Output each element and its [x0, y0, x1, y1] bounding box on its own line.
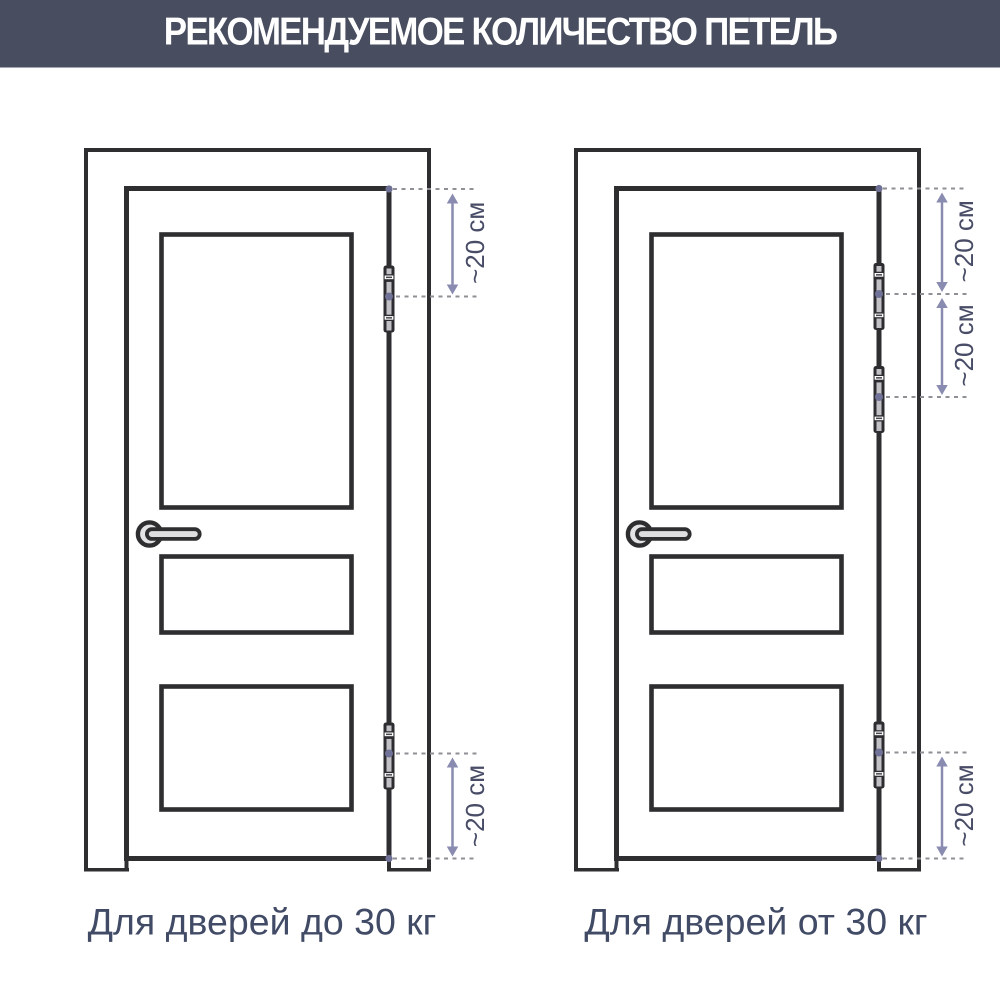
svg-text:Для дверей от 30 кг: Для дверей от 30 кг — [584, 901, 927, 943]
svg-text:РЕКОМЕНДУЕМОЕ КОЛИЧЕСТВО ПЕТЕЛ: РЕКОМЕНДУЕМОЕ КОЛИЧЕСТВО ПЕТЕЛЬ — [164, 10, 838, 53]
svg-text:Для дверей до 30 кг: Для дверей до 30 кг — [88, 901, 437, 943]
svg-text:~20 см: ~20 см — [949, 304, 979, 386]
svg-text:~20 см: ~20 см — [460, 765, 490, 847]
svg-text:~20 см: ~20 см — [949, 764, 979, 846]
svg-text:~20 см: ~20 см — [460, 202, 490, 284]
svg-text:~20 см: ~20 см — [949, 200, 979, 282]
